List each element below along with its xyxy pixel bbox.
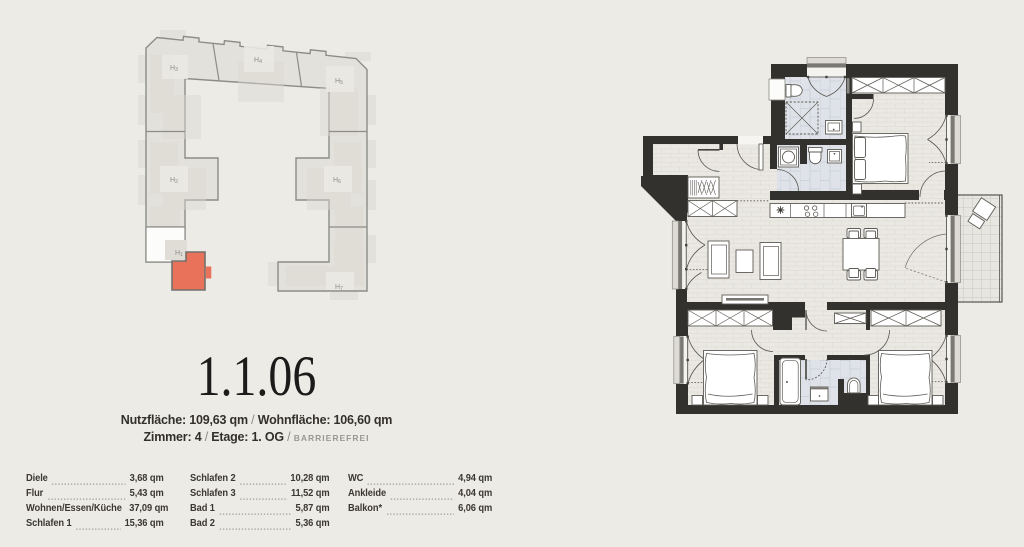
svg-text:H4: H4	[254, 57, 262, 65]
svg-text:H7: H7	[335, 284, 343, 292]
svg-text:H5: H5	[335, 78, 343, 86]
svg-text:H6: H6	[333, 177, 341, 185]
svg-text:H3: H3	[170, 65, 178, 73]
svg-text:H1: H1	[175, 250, 183, 258]
svg-text:H2: H2	[170, 177, 178, 185]
